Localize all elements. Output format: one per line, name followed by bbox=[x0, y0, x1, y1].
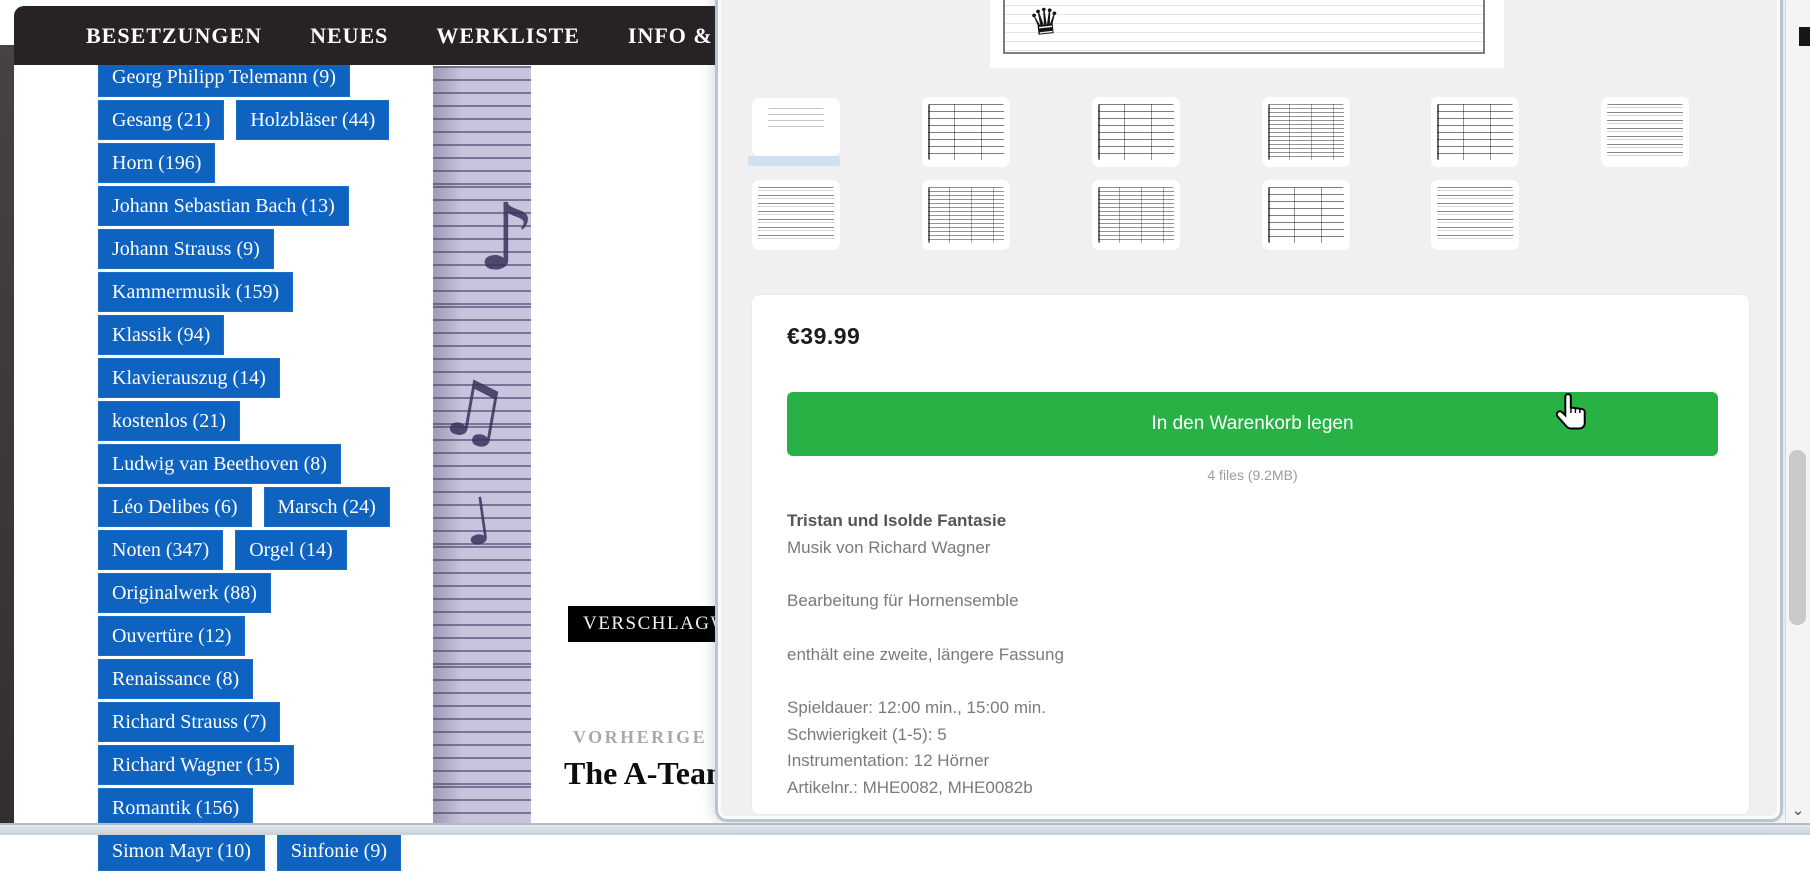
tag-button[interactable]: Johann Strauss (9) bbox=[98, 229, 274, 269]
ink-crown-icon: ♛ bbox=[1027, 0, 1063, 44]
tag-button[interactable]: Sinfonie (9) bbox=[277, 831, 401, 871]
tag-button[interactable]: Originalwerk (88) bbox=[98, 573, 271, 613]
score-thumbnail[interactable] bbox=[1262, 97, 1350, 167]
score-preview-page: ♛ bbox=[1003, 0, 1485, 54]
product-card: €39.99 In den Warenkorb legen 4 files (9… bbox=[751, 294, 1750, 815]
background-note-icon: ♫ bbox=[433, 361, 516, 462]
tag-button[interactable]: Holzbläser (44) bbox=[236, 100, 389, 140]
vertical-scrollbar[interactable]: ⌄ bbox=[1785, 0, 1810, 823]
product-composer: Musik von Richard Wagner bbox=[787, 538, 990, 557]
scrollbar-down-button[interactable]: ⌄ bbox=[1786, 801, 1810, 821]
tag-button[interactable]: Klassik (94) bbox=[98, 315, 224, 355]
score-thumbnail[interactable] bbox=[752, 180, 840, 250]
tag-button[interactable]: kostenlos (21) bbox=[98, 401, 240, 441]
product-modal: ♛ €39.99 In den Warenkorb legen 4 files … bbox=[715, 0, 1783, 822]
tag-button[interactable]: Kammermusik (159) bbox=[98, 272, 293, 312]
scrollbar-thumb[interactable] bbox=[1789, 450, 1806, 625]
product-description: Tristan und Isolde Fantasie Musik von Ri… bbox=[787, 508, 1064, 801]
score-thumbnail[interactable] bbox=[922, 97, 1010, 167]
score-thumbnail[interactable] bbox=[1601, 97, 1689, 167]
window-artifact bbox=[1799, 27, 1810, 46]
add-to-cart-button[interactable]: In den Warenkorb legen bbox=[787, 392, 1718, 456]
nav-item-info[interactable]: INFO & bbox=[628, 23, 713, 49]
tag-button[interactable]: Orgel (14) bbox=[235, 530, 347, 570]
score-preview: ♛ bbox=[990, 0, 1504, 68]
bottom-bar bbox=[0, 823, 1810, 835]
score-thumbnail[interactable] bbox=[1431, 97, 1519, 167]
tag-button[interactable]: Gesang (21) bbox=[98, 100, 224, 140]
tag-button[interactable]: Noten (347) bbox=[98, 530, 223, 570]
background-note-icon: ♪ bbox=[477, 184, 531, 291]
tag-button[interactable]: Léo Delibes (6) bbox=[98, 487, 252, 527]
tag-button[interactable]: Richard Wagner (15) bbox=[98, 745, 294, 785]
selected-thumbnail-indicator bbox=[748, 156, 840, 166]
tag-button[interactable]: Ouvertüre (12) bbox=[98, 616, 245, 656]
tag-button[interactable]: Horn (196) bbox=[98, 143, 215, 183]
tag-button[interactable]: Marsch (24) bbox=[264, 487, 390, 527]
score-thumbnail[interactable] bbox=[1431, 180, 1519, 250]
main-nav: BESETZUNGEN NEUES WERKLISTE INFO & bbox=[14, 6, 774, 65]
nav-item-besetzungen[interactable]: BESETZUNGEN bbox=[86, 23, 262, 49]
chevron-down-icon: ⌄ bbox=[1792, 801, 1805, 819]
nav-item-werkliste[interactable]: WERKLISTE bbox=[436, 23, 580, 49]
score-thumbnail[interactable] bbox=[752, 98, 840, 156]
tag-button[interactable]: Klavierauszug (14) bbox=[98, 358, 280, 398]
score-thumbnail[interactable] bbox=[1092, 180, 1180, 250]
product-spec-instrumentation: Instrumentation: 12 Hörner bbox=[787, 748, 1064, 775]
left-dark-strip bbox=[0, 45, 14, 823]
product-title: Tristan und Isolde Fantasie bbox=[787, 511, 1006, 530]
nav-item-neues[interactable]: NEUES bbox=[310, 23, 388, 49]
tag-button[interactable]: Renaissance (8) bbox=[98, 659, 253, 699]
tag-button[interactable]: Ludwig van Beethoven (8) bbox=[98, 444, 341, 484]
tag-button[interactable]: Simon Mayr (10) bbox=[98, 831, 265, 871]
product-price: €39.99 bbox=[787, 323, 860, 350]
tag-button[interactable]: Johann Sebastian Bach (13) bbox=[98, 186, 349, 226]
score-thumbnail[interactable] bbox=[1092, 97, 1180, 167]
score-thumbnail[interactable] bbox=[1262, 180, 1350, 250]
product-spec-articleno: Artikelnr.: MHE0082, MHE0082b bbox=[787, 775, 1064, 802]
files-info: 4 files (9.2MB) bbox=[787, 467, 1718, 483]
previous-post-label[interactable]: VORHERIGE bbox=[573, 727, 707, 748]
product-spec-duration: Spieldauer: 12:00 min., 15:00 min. bbox=[787, 695, 1064, 722]
sheet-music-background: ♪ ♫ ♩ bbox=[433, 66, 531, 823]
product-note: enthält eine zweite, längere Fassung bbox=[787, 642, 1064, 669]
tag-button[interactable]: Romantik (156) bbox=[98, 788, 253, 828]
tag-cloud: Georg Philipp Telemann (9)Gesang (21)Hol… bbox=[98, 57, 428, 874]
background-note-icon: ♩ bbox=[458, 484, 498, 561]
tag-button[interactable]: Richard Strauss (7) bbox=[98, 702, 280, 742]
previous-post-title[interactable]: The A-Tean bbox=[564, 755, 724, 792]
product-spec-difficulty: Schwierigkeit (1-5): 5 bbox=[787, 722, 1064, 749]
product-arrangement: Bearbeitung für Hornensemble bbox=[787, 588, 1064, 615]
score-thumbnail[interactable] bbox=[922, 180, 1010, 250]
